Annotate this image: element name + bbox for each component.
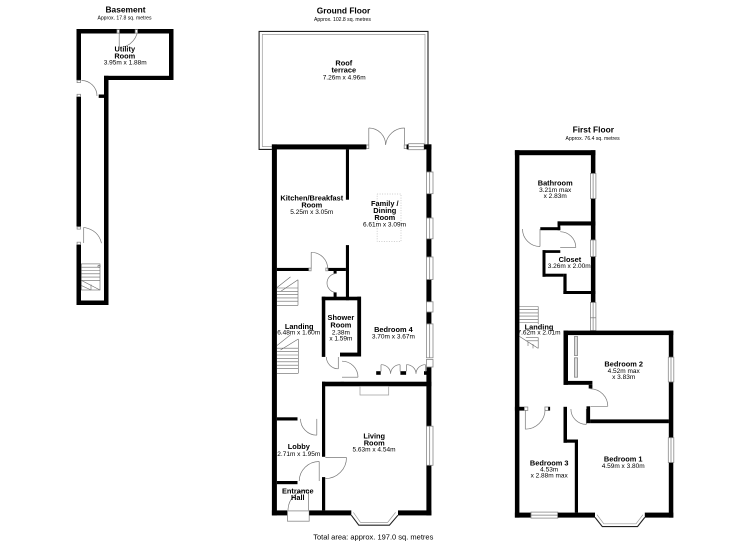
svg-text:terrace: terrace [331,65,356,74]
svg-text:x 2.88m max: x 2.88m max [531,473,569,480]
svg-text:2.71m x 1.95m: 2.71m x 1.95m [277,451,320,458]
svg-text:6.61m x 3.09m: 6.61m x 3.09m [363,221,406,228]
svg-text:Total area: approx. 197.0 sq.: Total area: approx. 197.0 sq. metres [313,533,433,542]
svg-text:7.62m x 2.01m: 7.62m x 2.01m [518,329,561,336]
svg-text:Basement: Basement [105,5,145,15]
svg-text:3.70m x 3.67m: 3.70m x 3.67m [372,333,415,340]
svg-text:Room: Room [330,321,351,330]
svg-text:Approx. 76.4 sq. metres: Approx. 76.4 sq. metres [566,136,621,142]
svg-text:3.95m x 1.88m: 3.95m x 1.88m [104,60,147,67]
svg-text:5.25m x 3.05m: 5.25m x 3.05m [290,209,333,216]
svg-text:x 1.59m: x 1.59m [329,336,352,343]
svg-text:Approx. 102.8 sq. metres: Approx. 102.8 sq. metres [314,17,371,23]
svg-text:4.59m x 3.80m: 4.59m x 3.80m [602,463,645,470]
svg-text:Ground Floor: Ground Floor [317,6,371,16]
svg-text:5.63m x 4.54m: 5.63m x 4.54m [353,446,396,453]
svg-text:7.26m x 4.96m: 7.26m x 4.96m [323,74,366,81]
svg-text:x 2.83m: x 2.83m [544,193,567,200]
svg-text:Hall: Hall [291,493,305,502]
svg-text:6.48m x 1.60m: 6.48m x 1.60m [277,330,320,337]
svg-text:Lobby: Lobby [288,442,311,451]
svg-text:First Floor: First Floor [573,125,615,135]
svg-text:3.26m x 2.00m: 3.26m x 2.00m [548,263,591,270]
svg-text:x 3.83m: x 3.83m [612,374,635,381]
svg-text:Approx. 17.8 sq. metres: Approx. 17.8 sq. metres [97,16,152,22]
